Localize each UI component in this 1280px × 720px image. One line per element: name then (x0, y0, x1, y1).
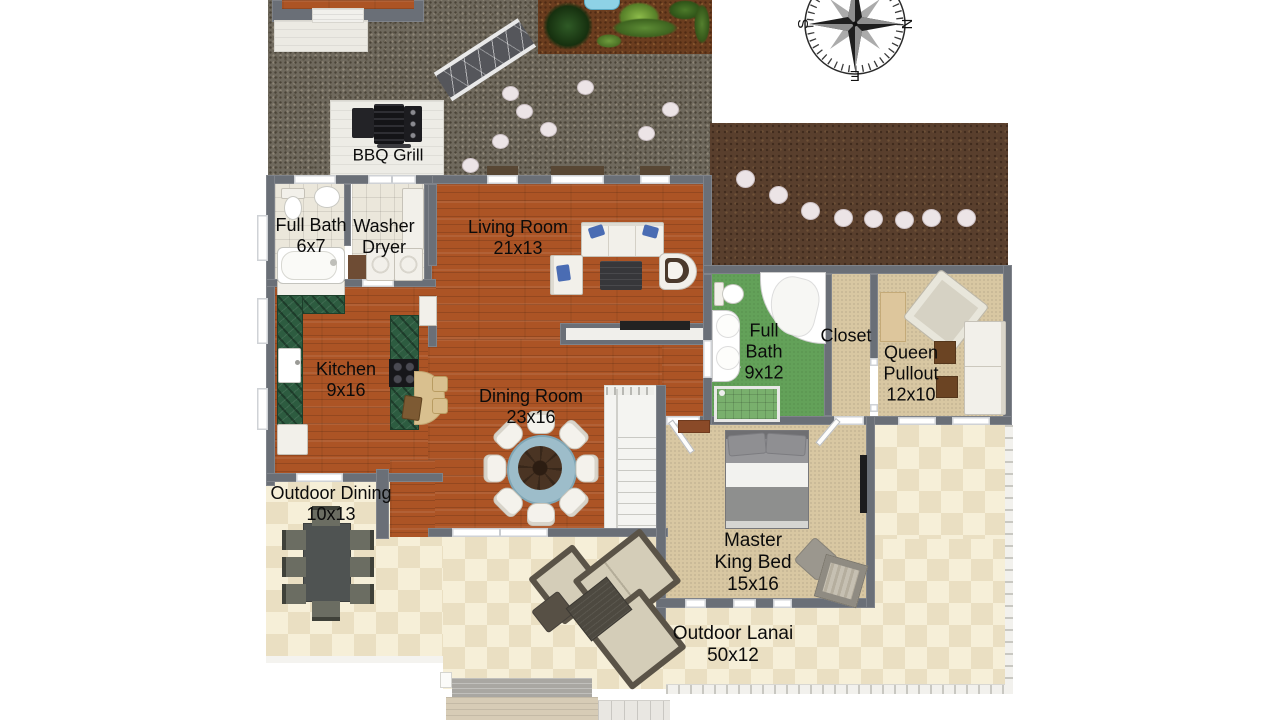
window-left-3 (257, 388, 268, 430)
patio-table (303, 523, 351, 602)
vanity-basin (716, 346, 740, 370)
patio-chair (282, 584, 306, 604)
plant-grass (612, 18, 678, 38)
bar-stool (432, 398, 448, 414)
shed-deck (274, 20, 368, 52)
compass-n: N (898, 19, 915, 30)
dirt-yard (710, 123, 1008, 270)
bar-stool (432, 376, 448, 392)
window-bath1 (294, 175, 336, 184)
tv-console (620, 321, 690, 330)
staircase-treads (618, 437, 656, 533)
sliding-door-deck (368, 175, 416, 184)
dishwasher (277, 424, 308, 455)
window-queen-2 (952, 417, 990, 425)
window-box (487, 166, 518, 175)
stepping-stone (662, 102, 679, 117)
bed-pillow (765, 433, 806, 457)
coffee-table (600, 261, 642, 290)
bathtub-faucet (330, 259, 337, 266)
window-left-1 (257, 215, 268, 261)
wall-right-section-top (703, 265, 1012, 274)
bbq-grill-side-shelf (352, 108, 374, 138)
kitchen-faucet (295, 360, 300, 365)
stepping-stone (895, 211, 914, 229)
door-post-queen-2 (870, 404, 878, 412)
bed-pillow (727, 432, 767, 456)
kitchen-fridge (419, 296, 437, 326)
patio-chair (312, 601, 340, 621)
dresser (678, 420, 710, 433)
label-outdoor-dining: Outdoor Dining 10x13 (270, 483, 391, 525)
stepping-stone (922, 209, 941, 227)
stepping-stone (957, 209, 976, 227)
stepping-stone (736, 170, 755, 188)
plant-tall (694, 4, 710, 44)
steps-lower (446, 697, 598, 720)
steps-upper (452, 678, 592, 697)
label-living-room: Living Room 21x13 (468, 217, 568, 259)
kitchen-sink (278, 348, 301, 383)
wall-kitchen-living-upper (428, 184, 437, 266)
patio-edge (266, 656, 446, 663)
toilet2-bowl (722, 284, 744, 304)
wall-tv (860, 455, 867, 513)
stepping-stone (834, 209, 853, 227)
staircase-shelf (606, 387, 654, 395)
lanai-railing-bottom (666, 684, 1013, 694)
compass-e: E (850, 67, 860, 84)
bbq-grill-panel (404, 106, 422, 142)
lanai-railing-right (1005, 425, 1013, 687)
wall-living-right (703, 175, 712, 274)
dining-floor-extension (390, 460, 435, 537)
label-kitchen: Kitchen 9x16 (316, 359, 376, 401)
label-dining-room: Dining Room 23x16 (479, 386, 583, 428)
patio-chair (350, 557, 374, 577)
stepping-stone (577, 80, 594, 95)
dining-chair (576, 455, 599, 483)
pond (584, 0, 620, 10)
label-washer-dryer: Washer Dryer (353, 216, 414, 258)
steps-side (598, 700, 670, 720)
window-living-1 (487, 175, 518, 184)
floor-plan: N E S W (0, 0, 1280, 720)
stepping-stone (502, 86, 519, 101)
vanity-basin (716, 314, 740, 338)
label-closet: Closet (820, 326, 871, 347)
wall-kitchen-bottom (266, 473, 443, 482)
plant-small (596, 34, 622, 48)
window-left-2 (257, 298, 268, 344)
wall-closet-queen (870, 274, 878, 366)
armchair-pillow (556, 264, 571, 282)
dining-chair (527, 503, 555, 526)
patio-chair (282, 530, 306, 550)
window-box (551, 166, 604, 175)
label-master-bedroom: Master King Bed 15x16 (714, 530, 791, 596)
window-living-2 (551, 175, 604, 184)
bath-sink (314, 186, 340, 208)
patio-chair (282, 557, 306, 577)
stepping-stone (638, 126, 655, 141)
window-master-1 (685, 599, 706, 608)
side-table (936, 376, 958, 398)
window-kitchen-bottom (296, 473, 343, 482)
patio-chair (350, 530, 374, 550)
desk (880, 292, 906, 342)
pullout-sofa (964, 321, 1006, 415)
window-queen-1 (898, 417, 936, 425)
kitchen-chair (401, 395, 422, 421)
label-outdoor-lanai: Outdoor Lanai 50x12 (673, 623, 793, 667)
stepping-stone (492, 134, 509, 149)
wall-master-right (866, 416, 875, 608)
label-queen-pullout: Queen Pullout 12x10 (883, 343, 938, 406)
compass-s: S (795, 19, 812, 29)
stepping-stone (516, 104, 533, 119)
shower-head (719, 390, 725, 396)
dining-chair (484, 455, 507, 483)
compass-rose: N E S W (793, 0, 917, 86)
stepping-stone (801, 202, 820, 220)
stepping-stone (769, 186, 788, 204)
steps-rail (440, 672, 452, 688)
label-full-bath-large: Full Bath 9x12 (744, 321, 783, 384)
patio-chair (350, 584, 374, 604)
dining-table-top (518, 446, 562, 490)
bbq-grill-body (374, 104, 404, 144)
barrel-chair-seat (668, 262, 683, 279)
stepping-stone (864, 210, 883, 228)
window-living-3 (640, 175, 670, 184)
laundry-mat (348, 255, 366, 279)
door-gap-bath2 (703, 340, 712, 378)
window-master-3 (773, 599, 792, 608)
label-bbq-grill: BBQ Grill (353, 145, 424, 166)
window-master-2 (733, 599, 756, 608)
door-post-queen-1 (870, 358, 878, 366)
stepping-stone (462, 158, 479, 173)
window-box (640, 166, 670, 175)
stepping-stone (540, 122, 557, 137)
sliding-door-dining (452, 528, 548, 537)
lanai-right-wing (875, 425, 1006, 539)
label-full-bath-small: Full Bath 6x7 (275, 215, 346, 257)
shed-steps (312, 8, 364, 23)
staircase-rail (616, 389, 618, 533)
